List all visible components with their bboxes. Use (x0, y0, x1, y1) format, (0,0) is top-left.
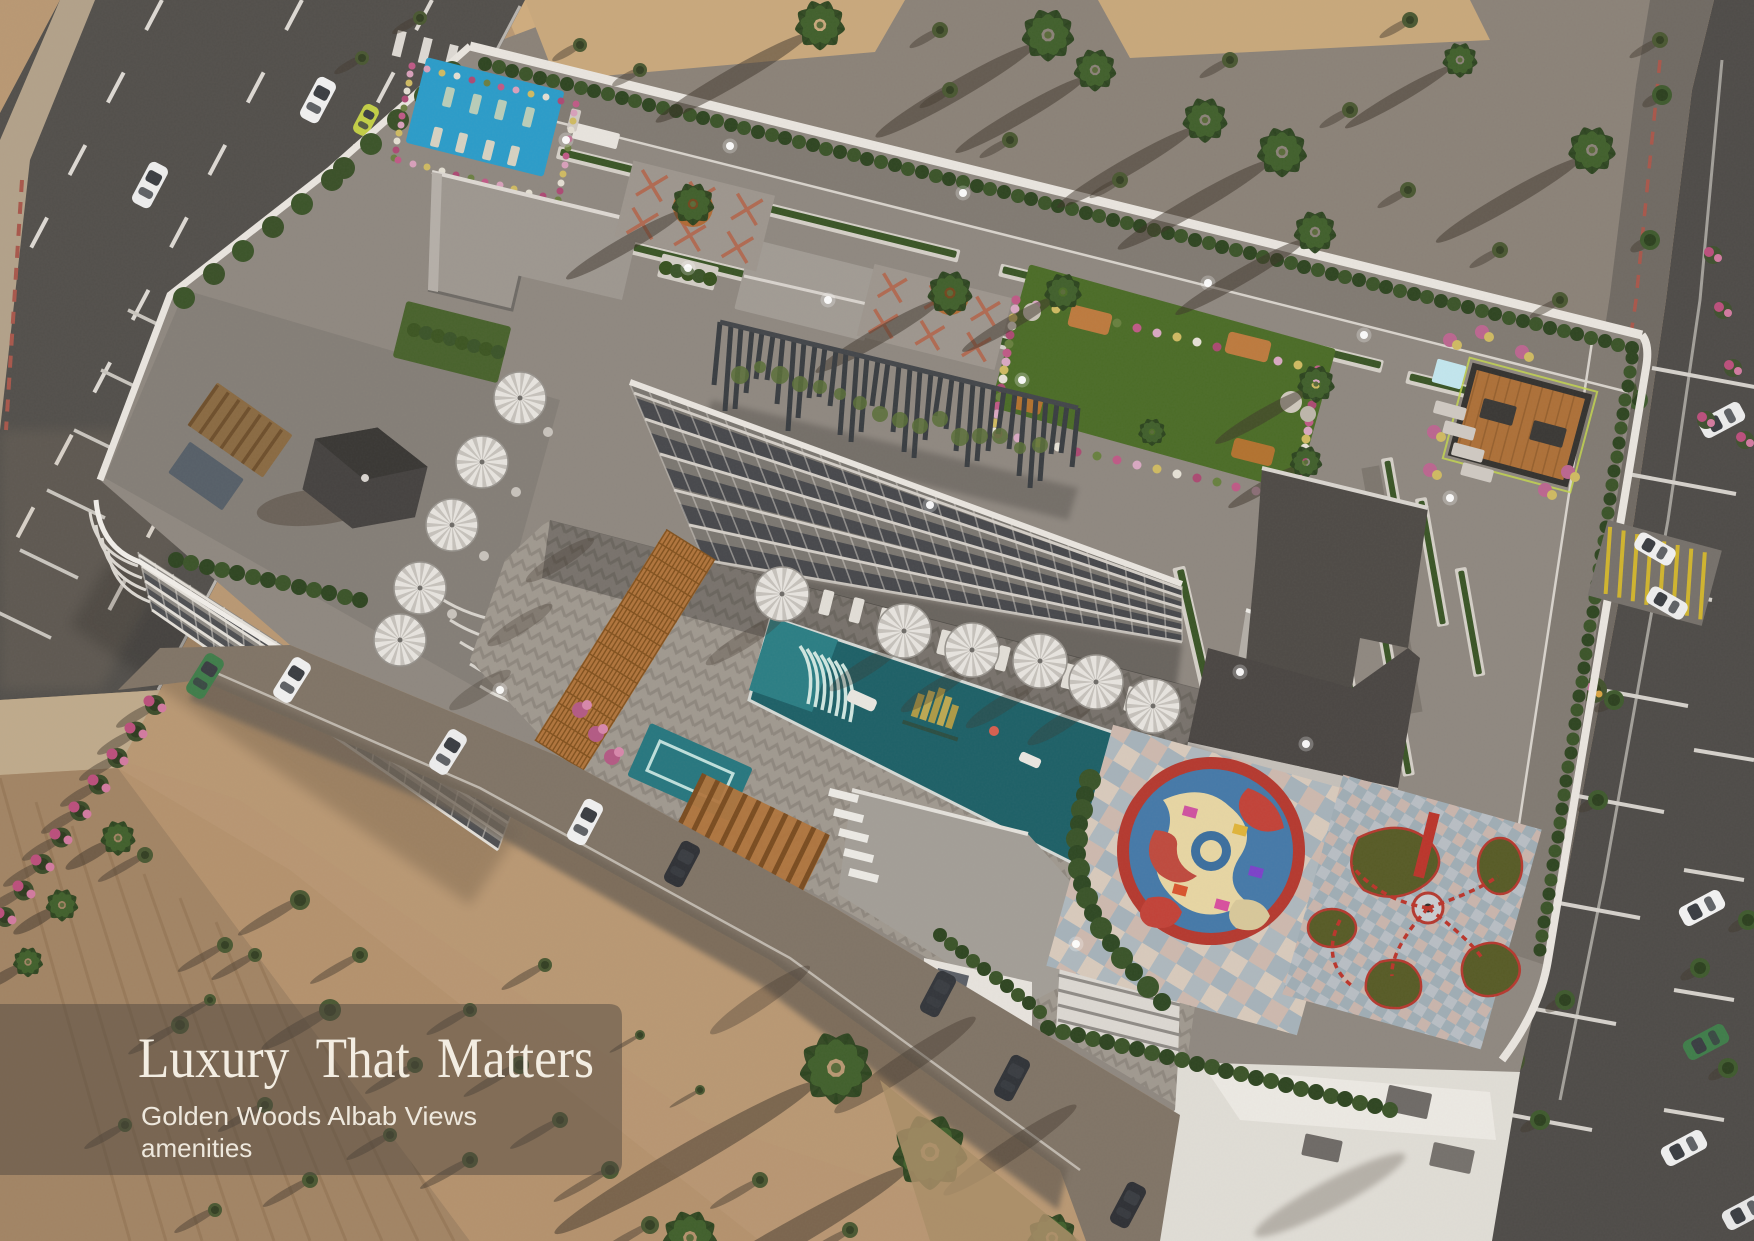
svg-text:amenities: amenities (141, 1133, 252, 1163)
svg-text:Golden Woods Albab Views: Golden Woods Albab Views (141, 1101, 477, 1131)
svg-text:Luxury That Matters: Luxury That Matters (138, 1027, 594, 1090)
